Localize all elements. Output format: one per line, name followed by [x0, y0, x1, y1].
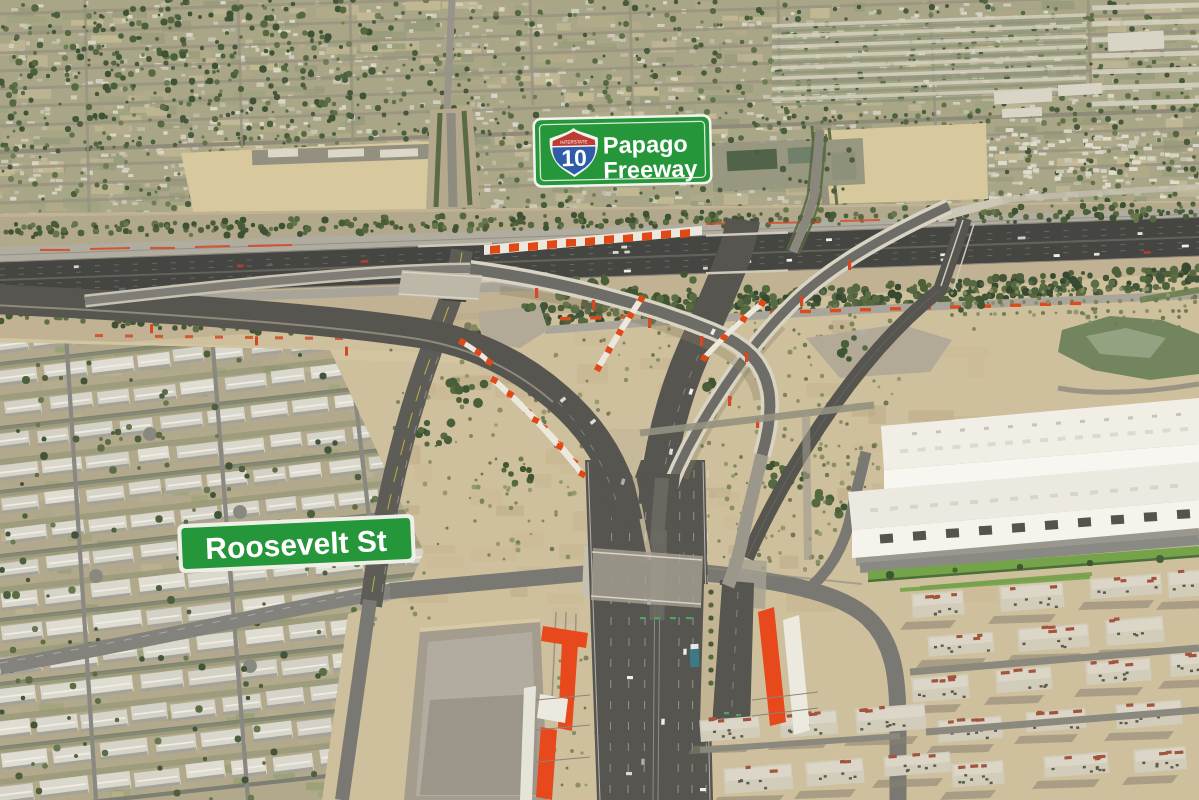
svg-text:10: 10: [561, 145, 587, 172]
svg-text:Freeway: Freeway: [603, 155, 698, 183]
svg-text:Papago: Papago: [603, 131, 688, 159]
